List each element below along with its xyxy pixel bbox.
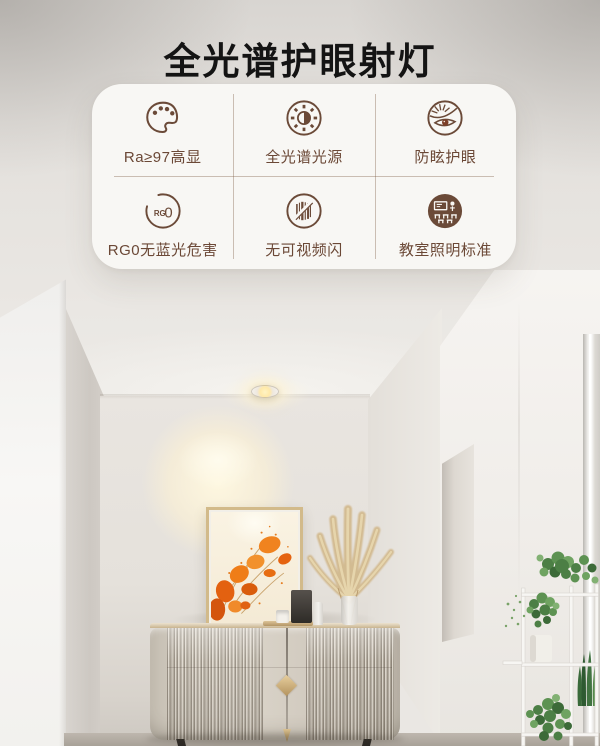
- feature-label: Ra≥97高显: [124, 146, 202, 167]
- cabinet-drawer-seam: [167, 667, 392, 668]
- feature-label: 防眩护眼: [414, 146, 476, 167]
- feature-high-cri: Ra≥97高显: [92, 84, 233, 177]
- orange-floral-art: [211, 512, 298, 624]
- feature-full-spectrum: 全光谱光源: [233, 84, 374, 177]
- feature-rg0: RG 0 RG0无蓝光危害: [92, 177, 233, 270]
- cabinet-floor-shadow: [146, 734, 404, 744]
- wall-niche: [442, 444, 474, 642]
- feature-label: 全光谱光源: [265, 146, 343, 167]
- feature-no-flicker: 无可视频闪: [233, 177, 374, 270]
- feature-card: Ra≥97高显 全光谱光源: [92, 84, 516, 269]
- petals: [211, 533, 294, 620]
- left-foreground-wall: [0, 270, 66, 746]
- sideboard-cabinet: [150, 623, 400, 746]
- artwork-canvas: [211, 512, 298, 624]
- feature-label: 教室照明标准: [399, 239, 492, 260]
- hanging-plant-top: [537, 552, 599, 584]
- potted-plant-middle: [527, 593, 560, 663]
- feature-anti-glare: 防眩护眼: [375, 84, 516, 177]
- foliage: [527, 593, 560, 628]
- classroom-lighting-icon: [424, 190, 466, 232]
- plant-shelf-unit: [500, 538, 600, 746]
- feature-label: 无可视频闪: [265, 239, 343, 260]
- snake-plant: [578, 650, 598, 706]
- full-spectrum-light-icon: [283, 97, 325, 139]
- rg0-big-text: 0: [164, 205, 172, 221]
- page-title: 全光谱护眼射灯: [0, 31, 600, 85]
- spotlight-hotspot: [168, 428, 268, 500]
- product-promo-image: 全光谱护眼射灯 Ra≥97高显: [0, 0, 600, 746]
- anti-glare-eye-icon: [424, 97, 466, 139]
- palette-icon: [142, 97, 184, 139]
- divider: [114, 176, 494, 177]
- candle-cup: [276, 610, 289, 623]
- recessed-spotlight: [251, 385, 279, 398]
- feature-classroom-standard: 教室照明标准: [375, 177, 516, 270]
- cabinet-fluted-door-left: [167, 628, 263, 740]
- no-flicker-icon: [283, 190, 325, 232]
- feature-label: RG0无蓝光危害: [108, 239, 218, 260]
- rg0-badge-icon: RG 0: [142, 190, 184, 232]
- glass-vase: [341, 596, 358, 625]
- cabinet-fluted-door-right: [306, 628, 394, 740]
